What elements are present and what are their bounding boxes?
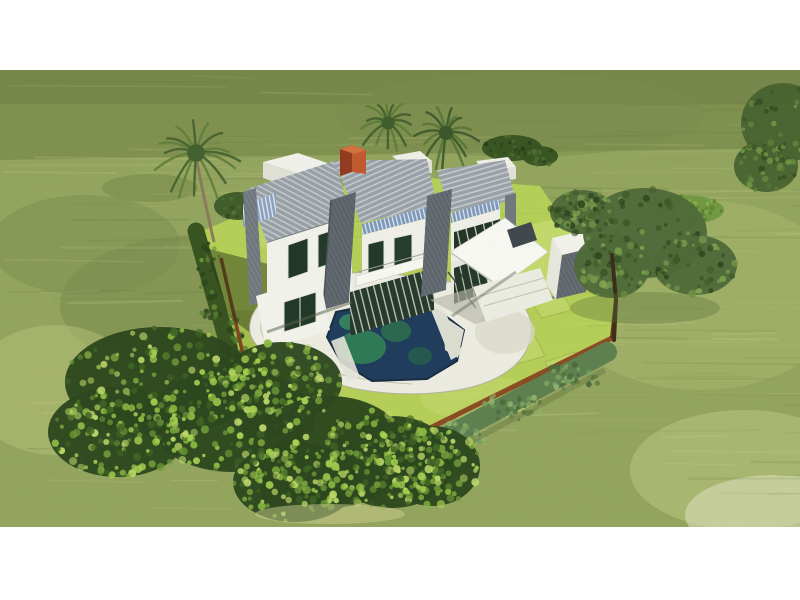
property-rendering-image — [0, 0, 800, 600]
border-top — [0, 0, 800, 70]
border-bottom — [0, 527, 800, 600]
artwork-frame — [0, 0, 800, 600]
paper-grain — [0, 70, 800, 527]
